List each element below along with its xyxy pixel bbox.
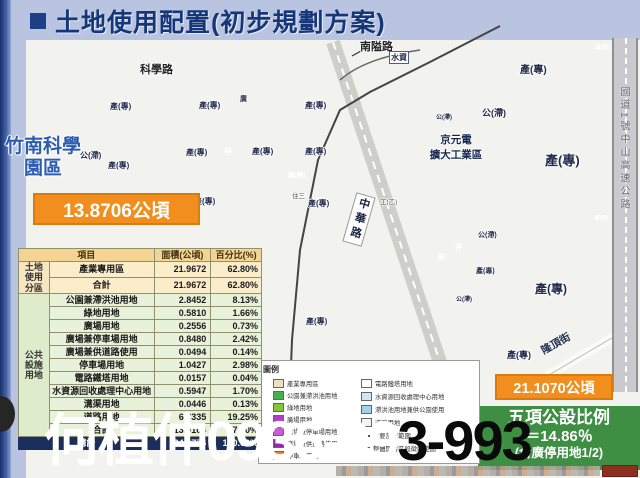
legend-title: 圖例 <box>263 364 475 375</box>
legend-item: 電路鐵塔用地 <box>361 379 413 388</box>
highway-label: 國道1號中山高速公路 <box>616 86 631 212</box>
park-label: 公(滯) <box>482 106 506 119</box>
park-label: 公(滯) <box>436 112 452 121</box>
block-label: 產(專) <box>108 160 129 171</box>
block-label: 產(專) <box>199 100 220 111</box>
block-label: 產(專) <box>252 146 273 157</box>
plaza-label: 廣 <box>240 94 247 104</box>
watermark-white: 何植仲0936-99 <box>44 409 398 472</box>
watermark-black: 3-993 <box>398 409 531 472</box>
green-label: 綠 <box>438 252 445 262</box>
table-row: 廣場兼供道路使用0.04940.14% <box>19 346 262 359</box>
block-label: 產(專) <box>507 348 531 361</box>
edge-dot <box>0 396 15 432</box>
block-label: 產(專) <box>305 100 326 111</box>
title-bullet-icon <box>30 13 46 29</box>
table-row: 公共設施用地 公園兼滯洪池用地2.84528.13% <box>19 294 262 307</box>
table-row: 電路鐵塔用地0.01570.04% <box>19 372 262 385</box>
science-park-label: 竹南科學園區 <box>2 136 84 180</box>
block-label: 停 <box>224 146 232 157</box>
table-row: 綠地用地0.58101.66% <box>19 307 262 320</box>
legend-swatch <box>361 379 372 388</box>
block-label: 產(專) <box>305 146 326 157</box>
table-row: 合計21.967262.80% <box>19 278 262 294</box>
block-label: 產(專) <box>535 280 567 297</box>
group-label: 土地使用分區 <box>19 262 50 294</box>
table-header: 項目 面積(公頃) 百分比(%) <box>19 249 262 262</box>
table-row: 廣場兼停車場用地0.84802.42% <box>19 333 262 346</box>
legend-item: 產業專用區 <box>273 379 318 388</box>
block-label: 產(專) <box>306 316 327 327</box>
parking-label: 停 <box>455 242 462 252</box>
slide: 土地使用配置(初步規劃方案) <box>0 0 640 478</box>
table-row: 土地使用分區 產業專用區21.967262.80% <box>19 262 262 278</box>
page-title: 土地使用配置(初步規劃方案) <box>55 3 386 39</box>
plaza-label: 廣(停) <box>594 214 609 222</box>
zone-label: 工(乙) <box>380 196 397 206</box>
park-label: 公(滯) <box>478 230 497 240</box>
table-row: 停車場用地1.04272.98% <box>19 359 262 372</box>
block-label: 產(專) <box>520 61 547 76</box>
table-row: 廣場用地0.25560.73% <box>19 320 262 333</box>
kexue-road-label: 科學路 <box>140 61 173 77</box>
block-label: 產(專) <box>476 266 495 276</box>
block-label: 產(專) <box>110 101 131 112</box>
plaza-label: 廣(道) <box>595 43 610 51</box>
block-label: 產(專) <box>545 150 580 169</box>
park-label: 公(滯) <box>456 294 472 303</box>
footnote-chip <box>602 465 638 477</box>
col-area: 面積(公頃) <box>154 249 211 262</box>
zone-label: 住三 <box>292 190 305 200</box>
water-facility-label: 水資 <box>389 51 409 64</box>
jingyuan-label: 京元電 擴大工業區 <box>424 132 488 162</box>
col-item: 項目 <box>19 249 155 262</box>
watermark: 何植仲0936-993-993 <box>44 396 531 477</box>
block-label: 產(專) <box>308 198 329 209</box>
legend-swatch <box>273 379 284 388</box>
col-pct: 百分比(%) <box>211 249 262 262</box>
left-area-box: 13.8706公頃 <box>33 193 200 225</box>
block-label: 產(專) <box>186 147 207 158</box>
plaza-label: 廣(停) <box>288 169 305 179</box>
